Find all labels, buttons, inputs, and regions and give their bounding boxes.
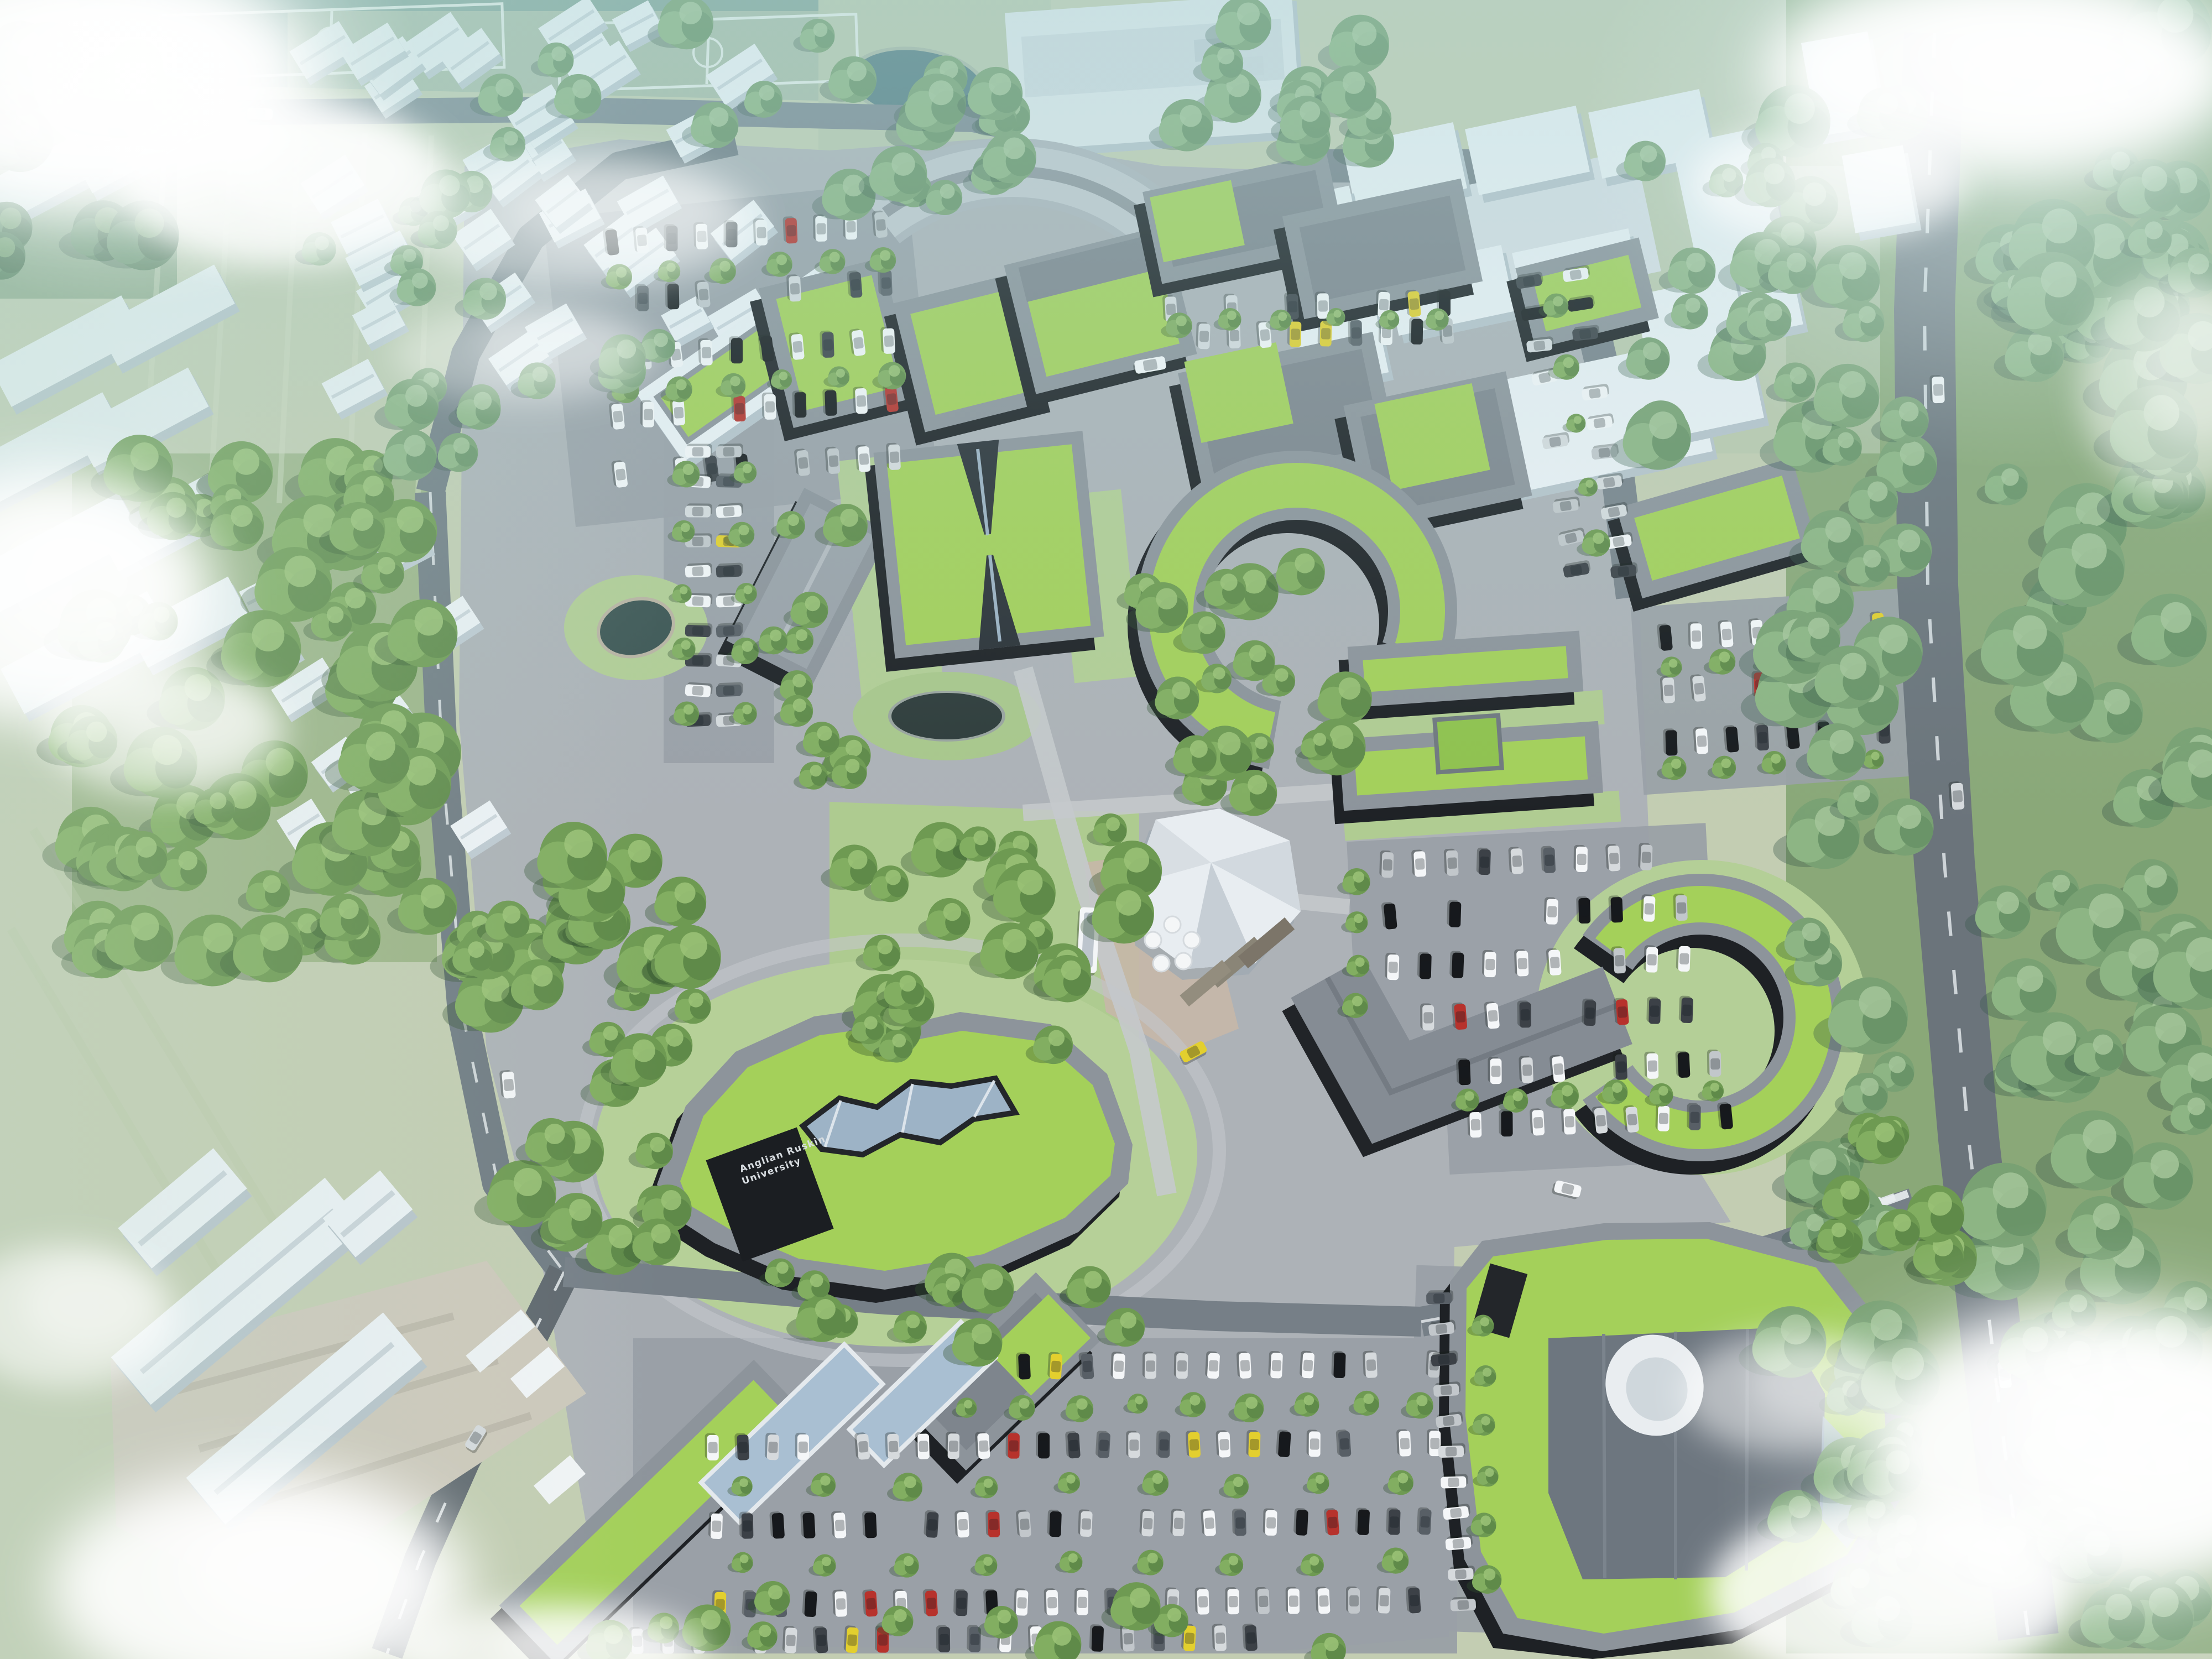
cloud-core	[510, 168, 722, 254]
cloud	[1681, 1333, 1902, 1454]
cloud-core	[1818, 1517, 2037, 1640]
cloud-core	[1747, 1345, 1880, 1424]
render-canvas: Anglian RuskinUniversity	[0, 0, 2212, 1659]
cloud	[1692, 122, 1969, 243]
aerial-campus-render: Anglian RuskinUniversity	[0, 0, 2212, 1659]
cloud-core	[22, 1259, 155, 1352]
cloud-core	[1775, 134, 1941, 213]
cloud	[404, 155, 758, 288]
cloud-core	[472, 314, 632, 379]
cloud	[44, 664, 288, 796]
cloud	[393, 304, 658, 404]
cloud-core	[176, 1494, 428, 1645]
cloud-core	[117, 677, 263, 763]
